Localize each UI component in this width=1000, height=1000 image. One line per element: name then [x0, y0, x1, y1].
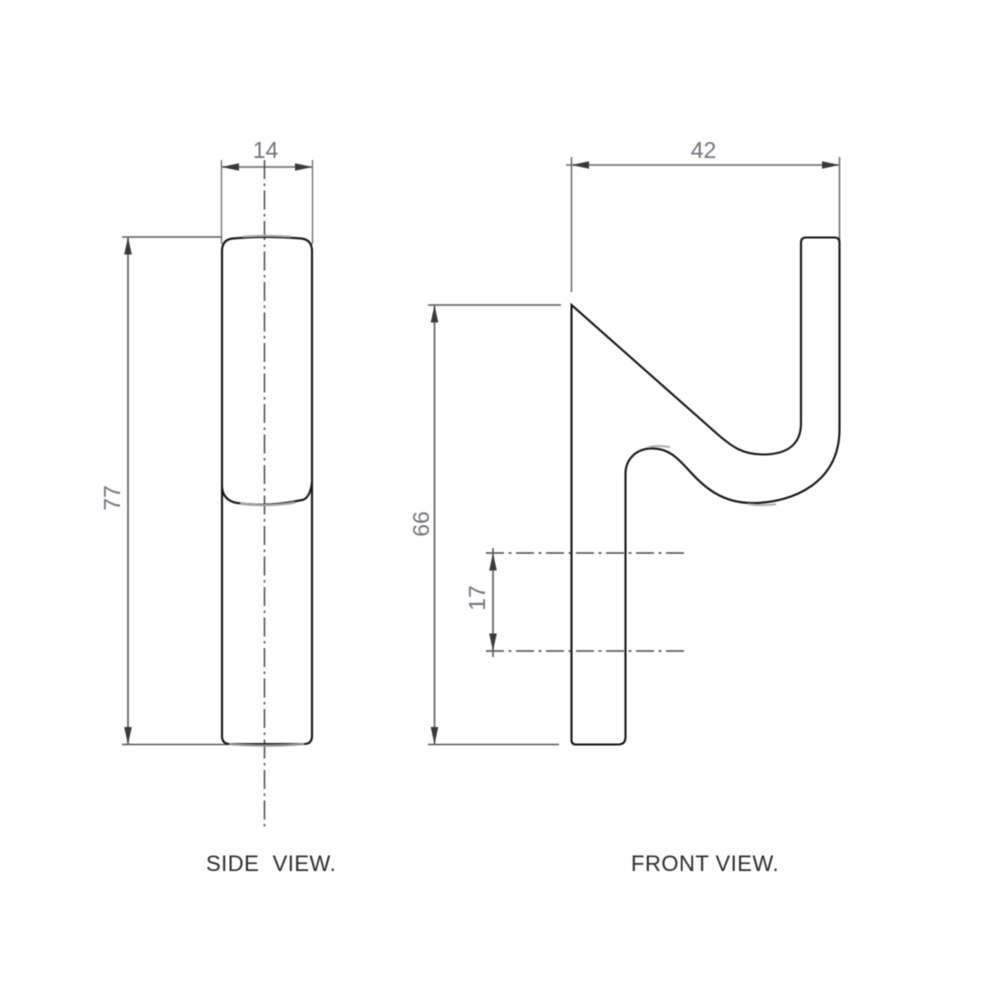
svg-text:42: 42 [691, 137, 717, 163]
svg-text:FRONT VIEW.: FRONT VIEW. [631, 851, 779, 876]
svg-text:17: 17 [464, 585, 490, 611]
svg-text:66: 66 [408, 511, 434, 537]
svg-text:14: 14 [253, 137, 279, 163]
svg-text:SIDE VIEW.: SIDE VIEW. [206, 851, 336, 876]
svg-text:77: 77 [99, 485, 125, 511]
